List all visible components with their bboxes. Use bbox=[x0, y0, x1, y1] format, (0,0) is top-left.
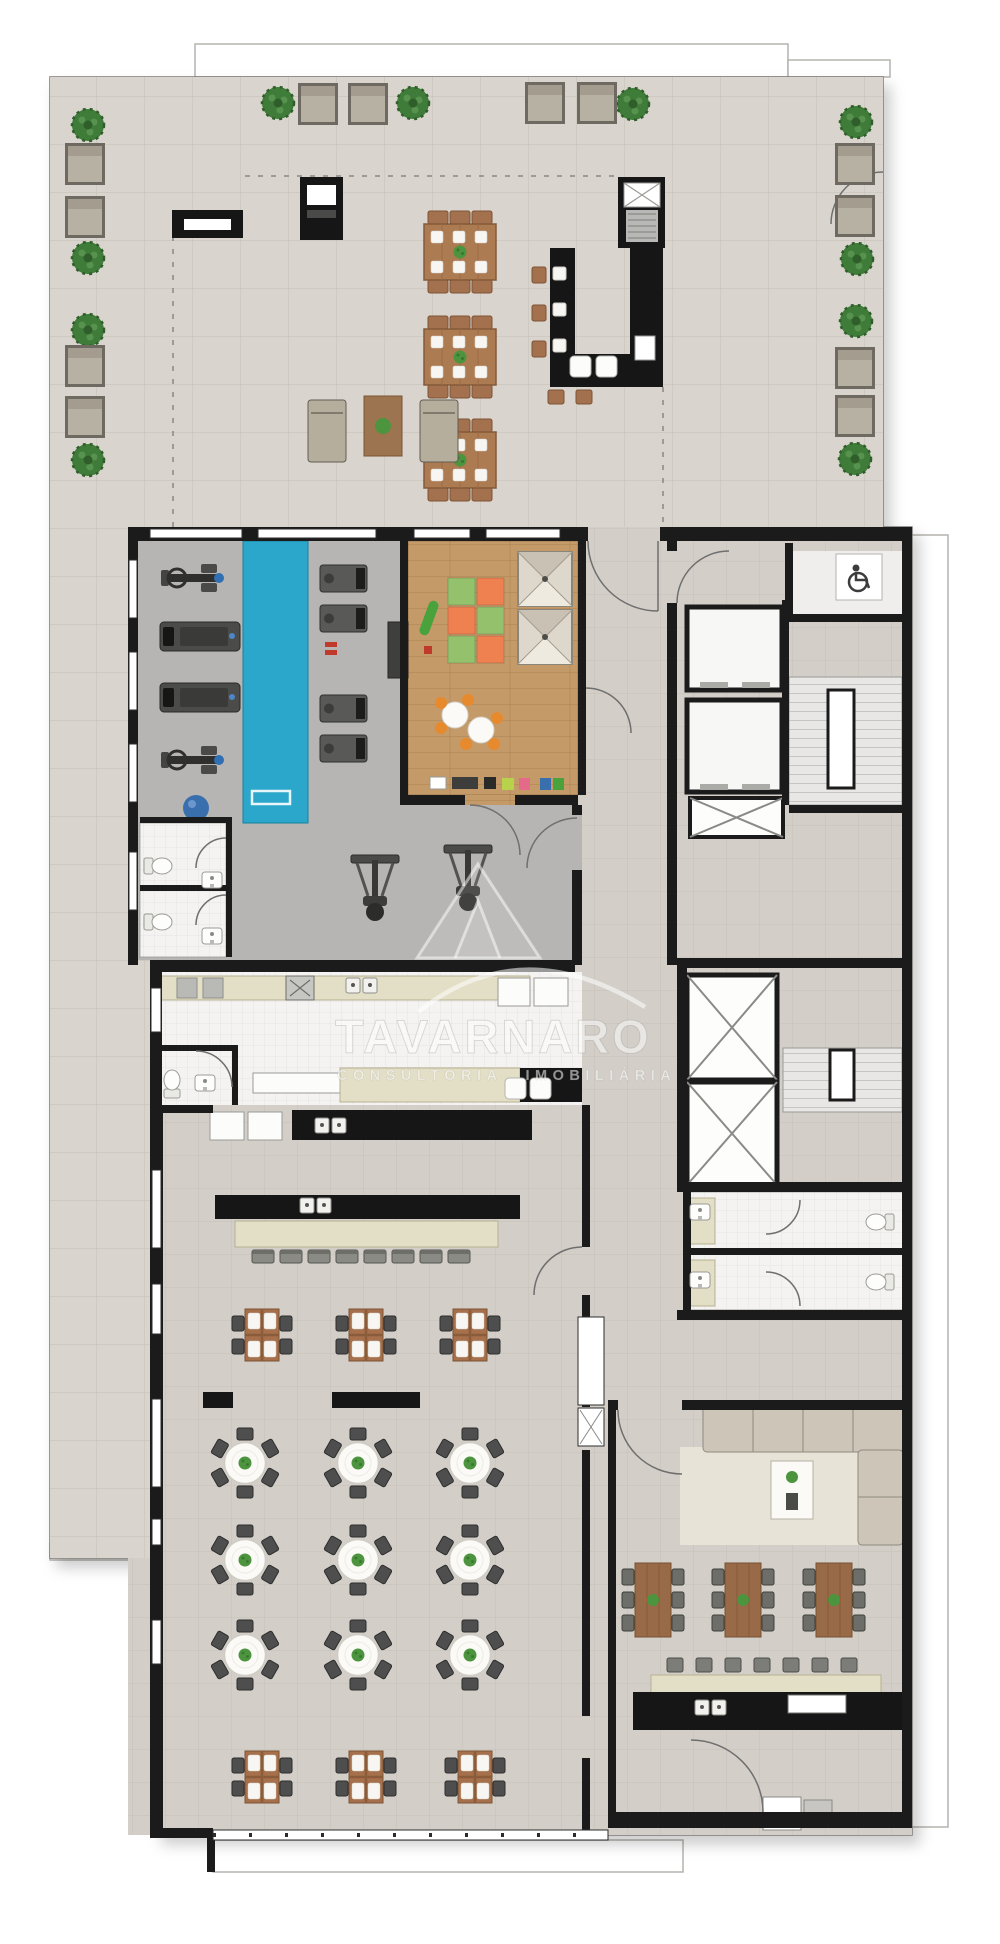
white-stool bbox=[596, 356, 617, 377]
grill-station-left bbox=[300, 177, 343, 240]
weight-bench bbox=[320, 605, 367, 632]
terrace-lounge-seat bbox=[577, 82, 617, 124]
gourmet-table bbox=[803, 1563, 865, 1637]
counter-plate bbox=[553, 339, 566, 352]
terrace-tree bbox=[841, 243, 873, 275]
lounger-side-table bbox=[364, 396, 402, 456]
terrace-lounge-seat bbox=[298, 83, 338, 125]
service-table-long bbox=[332, 1392, 420, 1408]
bar-stool-wood bbox=[532, 341, 546, 357]
weight-bench bbox=[320, 695, 367, 722]
terrace-tree bbox=[72, 444, 104, 476]
bar-stool-wood bbox=[532, 267, 546, 283]
bar-armchair bbox=[210, 1112, 244, 1140]
bar-stool-gray bbox=[754, 1658, 770, 1672]
bar-stool-wood bbox=[532, 305, 546, 321]
shaft-small bbox=[690, 798, 783, 837]
floor-plan-page: TAVARNARO CONSULTORIA IMOBILIÁRIA bbox=[0, 0, 1000, 1944]
banquet-chair bbox=[364, 1250, 386, 1263]
freezer bbox=[534, 978, 568, 1006]
toilet bbox=[866, 1274, 894, 1290]
terrace-lounge-seat bbox=[65, 396, 105, 438]
terrace-tree bbox=[840, 305, 872, 337]
washbasin bbox=[690, 1272, 710, 1288]
treadmill bbox=[160, 683, 240, 712]
toilet bbox=[866, 1214, 894, 1230]
terrace-lounge-seat bbox=[65, 196, 105, 238]
terrace-lounge-seat bbox=[525, 82, 565, 124]
elevator-shaft-1 bbox=[687, 975, 777, 1080]
bar-armchair bbox=[248, 1112, 282, 1140]
accessible-wc-icon bbox=[836, 554, 882, 600]
terrace-tree bbox=[72, 314, 104, 346]
terrace-tree bbox=[839, 443, 871, 475]
banquet-chair bbox=[392, 1250, 414, 1263]
long-serving-table bbox=[235, 1221, 498, 1247]
weight-bench bbox=[320, 565, 367, 592]
elevator-1 bbox=[687, 607, 782, 690]
fire-pit bbox=[172, 210, 243, 238]
banquet-chair bbox=[448, 1250, 470, 1263]
bottom-glazing bbox=[213, 1830, 608, 1840]
gourmet-counter bbox=[633, 1692, 905, 1730]
elevator-2 bbox=[687, 700, 782, 792]
watermark-brand: TAVARNARO bbox=[335, 1010, 652, 1063]
toy-small bbox=[424, 646, 432, 654]
terrace-lounge-seat bbox=[835, 347, 875, 389]
top-parapet bbox=[195, 44, 788, 77]
play-teepee bbox=[518, 552, 572, 606]
counter-plate bbox=[553, 267, 566, 280]
elevator-shaft-2 bbox=[687, 1082, 777, 1185]
stair-handrail bbox=[828, 690, 854, 788]
terrace-lounge-seat bbox=[835, 195, 875, 237]
right-balcony bbox=[910, 535, 948, 1827]
fridge bbox=[498, 978, 530, 1006]
washbasin bbox=[202, 872, 222, 888]
service-table-small bbox=[203, 1392, 233, 1408]
floor-plan: TAVARNARO CONSULTORIA IMOBILIÁRIA bbox=[0, 0, 1000, 1944]
bar-stool-wood bbox=[548, 390, 564, 404]
banquet-chair bbox=[280, 1250, 302, 1263]
weight-bench bbox=[320, 735, 367, 762]
kitchen-island bbox=[253, 1073, 340, 1093]
play-teepee bbox=[518, 610, 572, 664]
white-stool bbox=[570, 356, 591, 377]
washbasin bbox=[202, 928, 222, 944]
coffee-table bbox=[771, 1461, 813, 1519]
bar-stool-wood bbox=[576, 390, 592, 404]
toilet bbox=[144, 914, 172, 930]
bar-sink bbox=[635, 336, 655, 360]
banquet-chair bbox=[336, 1250, 358, 1263]
kitchen-appliance bbox=[203, 978, 223, 998]
terrace-tree bbox=[72, 109, 104, 141]
terrace-lounge-seat bbox=[835, 395, 875, 437]
terrace-lounge-seat bbox=[348, 83, 388, 125]
kitchen-appliance bbox=[177, 978, 197, 998]
watermark-tagline: CONSULTORIA IMOBILIÁRIA bbox=[337, 1067, 676, 1084]
terrace-tree bbox=[840, 106, 872, 138]
banquet-chair bbox=[420, 1250, 442, 1263]
treadmill bbox=[160, 622, 240, 651]
bar-stool-gray bbox=[812, 1658, 828, 1672]
toilet bbox=[144, 858, 172, 874]
buffet-counter bbox=[215, 1195, 520, 1219]
counter-plate bbox=[553, 303, 566, 316]
washbasin bbox=[195, 1075, 215, 1091]
rug bbox=[680, 1447, 858, 1545]
terrace-lounge-seat bbox=[65, 345, 105, 387]
terrace-tree bbox=[397, 87, 429, 119]
gourmet-table bbox=[622, 1563, 684, 1637]
terrace-tree bbox=[617, 88, 649, 120]
washbasin bbox=[690, 1204, 710, 1220]
toilet bbox=[164, 1070, 180, 1098]
bbq-counter bbox=[618, 177, 665, 248]
bar-stool-gray bbox=[725, 1658, 741, 1672]
service-hatch bbox=[578, 1408, 604, 1446]
terrace-lounge-seat bbox=[65, 143, 105, 185]
lap-pool bbox=[243, 541, 308, 823]
terrace-dining-table bbox=[424, 316, 496, 398]
terrace-tree bbox=[262, 87, 294, 119]
bar-stool-gray bbox=[783, 1658, 799, 1672]
bar-stool-gray bbox=[667, 1658, 683, 1672]
bar-stool-gray bbox=[696, 1658, 712, 1672]
bar-stool-gray bbox=[841, 1658, 857, 1672]
counter-recess bbox=[788, 1695, 846, 1713]
top-parapet-right bbox=[788, 60, 890, 77]
gourmet-table bbox=[712, 1563, 774, 1637]
bottom-balcony bbox=[213, 1840, 683, 1872]
terrace-lounge-seat bbox=[835, 143, 875, 185]
banquet-chair bbox=[252, 1250, 274, 1263]
sun-lounger bbox=[420, 400, 458, 462]
banquet-chair bbox=[308, 1250, 330, 1263]
stair-handrail-lower bbox=[830, 1050, 854, 1100]
service-door-panel bbox=[578, 1317, 604, 1405]
sun-lounger bbox=[308, 400, 346, 462]
terrace-dining-table bbox=[424, 211, 496, 293]
terrace-tree bbox=[72, 242, 104, 274]
